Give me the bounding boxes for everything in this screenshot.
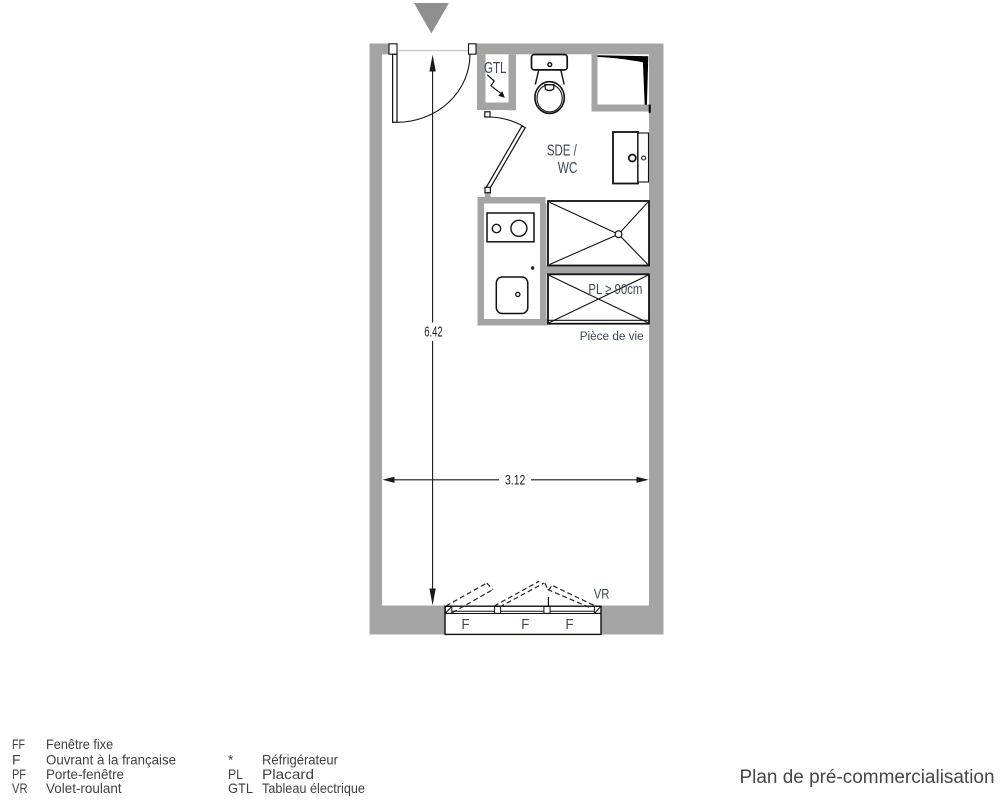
svg-text:FF: FF [12, 737, 25, 752]
svg-text:GTL: GTL [228, 781, 253, 796]
svg-text:Porte-fenêtre: Porte-fenêtre [46, 767, 124, 782]
svg-text:VR: VR [594, 586, 610, 602]
svg-text:F: F [462, 617, 470, 633]
svg-text:Pièce de vie: Pièce de vie [580, 329, 644, 343]
svg-text:F: F [566, 617, 574, 633]
svg-text:F: F [521, 617, 529, 633]
svg-text:Tableau électrique: Tableau électrique [262, 781, 365, 796]
svg-text:Fenêtre fixe: Fenêtre fixe [46, 737, 113, 752]
svg-text:Placard: Placard [262, 767, 314, 782]
svg-text:PL: PL [228, 767, 243, 782]
svg-text:F: F [12, 752, 20, 767]
svg-text:GTL: GTL [484, 60, 507, 77]
svg-text:PF: PF [12, 767, 26, 782]
svg-text:Plan de pré-commercialisation: Plan de pré-commercialisation [740, 767, 995, 788]
svg-text:PL ≥ 90cm: PL ≥ 90cm [588, 282, 642, 298]
svg-text:SDE /: SDE / [547, 143, 577, 160]
svg-text:WC: WC [558, 160, 578, 177]
svg-text:*: * [228, 752, 234, 767]
svg-text:Volet-roulant: Volet-roulant [46, 781, 122, 796]
svg-text:VR: VR [12, 781, 28, 796]
svg-text:6.42: 6.42 [424, 323, 443, 340]
svg-text:Réfrigérateur: Réfrigérateur [262, 752, 338, 767]
svg-text:Ouvrant à la française: Ouvrant à la française [46, 752, 176, 767]
svg-text:3.12: 3.12 [505, 472, 525, 488]
